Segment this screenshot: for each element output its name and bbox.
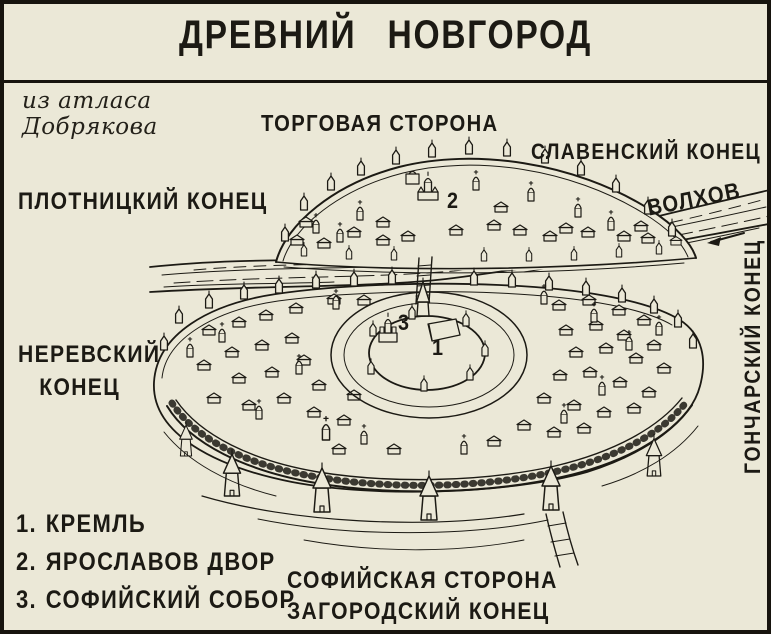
label-torgovaya-storona: ТОРГОВАЯ СТОРОНА: [261, 111, 499, 137]
map-marker-yaroslav-court: 2: [447, 188, 458, 214]
legend-label: СОФИЙСКИЙ СОБОР: [46, 586, 296, 614]
map-marker-kremlin: 1: [432, 335, 443, 361]
map-plate: ДРЕВНИЙ НОВГОРОД: [0, 0, 771, 634]
attribution-note: из атласа Добрякова: [22, 88, 158, 140]
label-plotnitsky-konets: ПЛОТНИЦКИЙ КОНЕЦ: [18, 189, 268, 216]
legend-number: 1.: [16, 510, 37, 538]
map-marker-sofia-cathedral: 3: [398, 310, 409, 336]
label-nerevsky-line2: КОНЕЦ: [18, 371, 141, 404]
legend-number: 3.: [16, 586, 37, 614]
label-zagorodsky-line: ЗАГОРОДСКИЙ КОНЕЦ: [287, 596, 558, 627]
legend-label: КРЕМЛЬ: [46, 510, 146, 538]
legend-item-yaroslav-court: 2.ЯРОСЛАВОВ ДВОР: [16, 548, 276, 576]
label-sofiyskaya-line: СОФИЙСКАЯ СТОРОНА: [287, 565, 558, 596]
legend-item-sofia-cathedral: 3.СОФИЙСКИЙ СОБОР: [16, 586, 296, 614]
label-goncharsky-konets: ГОНЧАРСКИЙ КОНЕЦ: [741, 239, 766, 474]
legend-label: ЯРОСЛАВОВ ДВОР: [46, 548, 276, 576]
label-nerevsky-line1: НЕРЕВСКИЙ: [18, 338, 141, 371]
label-nerevsky-konets: НЕРЕВСКИЙ КОНЕЦ: [18, 338, 141, 404]
label-slavensky-konets: СЛАВЕНСКИЙ КОНЕЦ: [531, 140, 761, 165]
legend-item-kremlin: 1.КРЕМЛЬ: [16, 510, 146, 538]
label-sofiyskaya-storona: СОФИЙСКАЯ СТОРОНА ЗАГОРОДСКИЙ КОНЕЦ: [287, 565, 558, 627]
legend-number: 2.: [16, 548, 37, 576]
attribution-line2: Добрякова: [22, 114, 158, 140]
attribution-line1: из атласа: [22, 88, 158, 114]
